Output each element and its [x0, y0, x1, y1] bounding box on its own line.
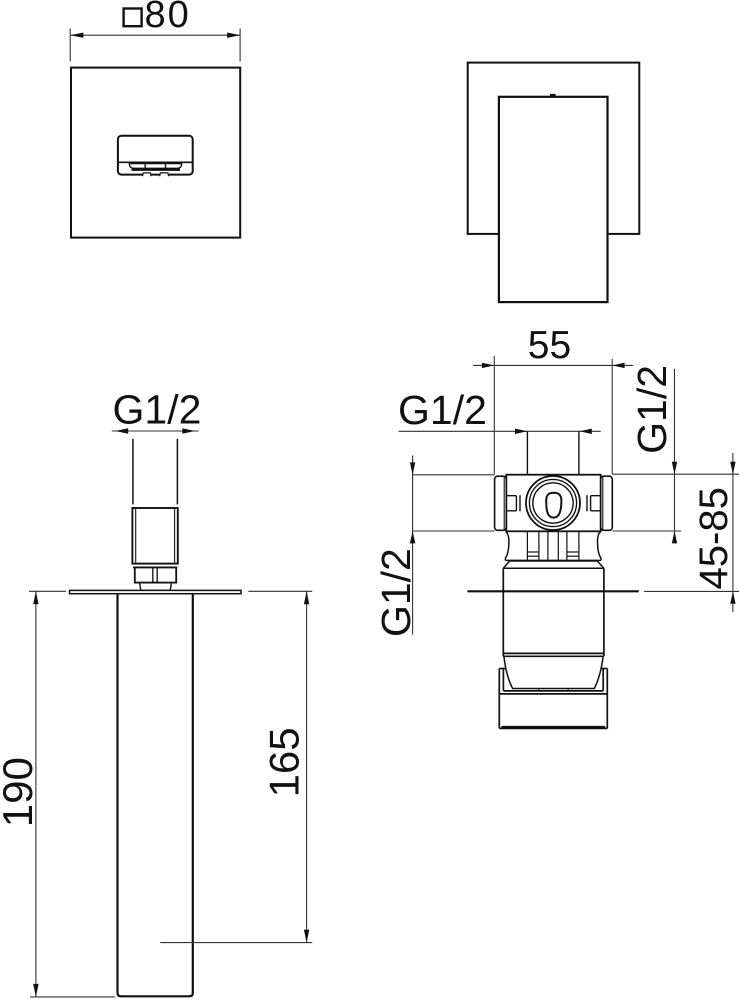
svg-text:55: 55 [528, 324, 571, 367]
svg-text:80: 80 [145, 0, 191, 36]
svg-text:G1/2: G1/2 [629, 365, 675, 454]
svg-text:45-85: 45-85 [692, 487, 736, 589]
svg-text:G1/2: G1/2 [113, 387, 202, 433]
svg-text:190: 190 [0, 757, 41, 827]
svg-text:165: 165 [261, 727, 308, 797]
svg-text:G1/2: G1/2 [398, 387, 487, 433]
